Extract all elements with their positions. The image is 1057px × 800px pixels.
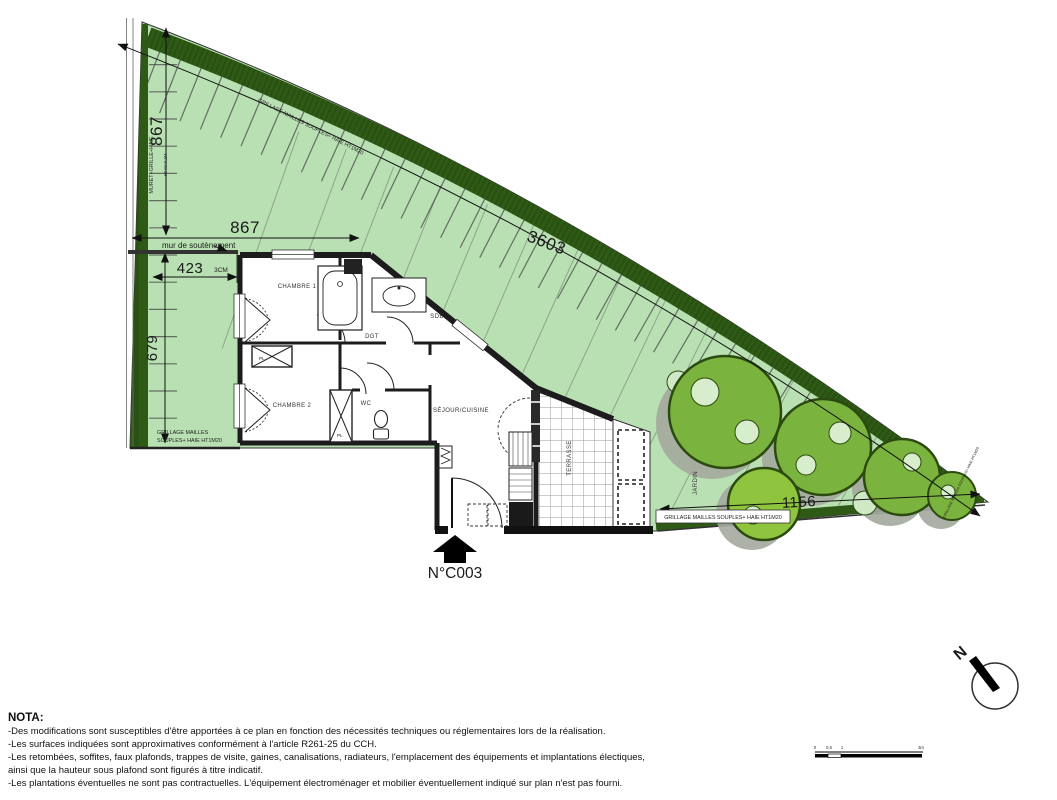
room-label-terrasse: TERRASSE: [567, 440, 573, 476]
scale-bar: 0 0.5 1 3m: [814, 745, 925, 758]
window-ch2: [234, 384, 245, 428]
radiator: [439, 446, 452, 468]
dim-867-top: 867: [230, 218, 260, 237]
room-label-chambre2: CHAMBRE 2: [273, 403, 312, 409]
nota-line: ainsi que la hauteur sous plafond sont f…: [8, 765, 698, 778]
entrance-gap: [448, 524, 504, 534]
north-compass: N: [951, 643, 1018, 709]
dim-679: 679: [144, 335, 161, 362]
tree-1: [669, 356, 781, 468]
nota-line: -Les retombées, soffites, faux plafonds,…: [8, 752, 698, 765]
room-label-jardin: JARDIN: [693, 471, 699, 495]
nota-title: NOTA:: [8, 712, 698, 724]
muret-label-1: MURET+GRILLE+HAIE: [149, 136, 155, 194]
hedge-left-texture: [134, 24, 139, 448]
retaining-wall-label: mur de soutènement: [162, 241, 236, 250]
toilet: [374, 411, 389, 440]
room-label-dgt: DGT: [365, 334, 379, 340]
scale-tick-3m: 3m: [918, 745, 924, 750]
water-heater: [344, 259, 362, 274]
fence-left-label-2: SOUPLES+ HAIE HT1M20: [157, 438, 222, 444]
room-label-sdb: SDB: [430, 314, 444, 320]
floor-plan-page: N 0 0.5 1 3m 867 867 423 3CM 679 3603 11…: [0, 0, 1057, 800]
entrance-arrow-icon: [433, 535, 477, 563]
muret-label-2: HT MAX 2M: [163, 153, 168, 176]
window-top: [272, 250, 314, 259]
dim-3cm: 3CM: [214, 267, 228, 274]
room-label-chambre1: CHAMBRE 1: [278, 284, 317, 290]
scale-tick-1: 1: [841, 745, 844, 750]
nota-line: -Des modifications sont susceptibles d'ê…: [8, 726, 698, 739]
room-label-wc: WC: [361, 401, 372, 407]
compass-needle-icon: [969, 656, 1000, 692]
nota-line: -Les plantations éventuelles ne sont pas…: [8, 778, 698, 791]
bathtub: [318, 266, 362, 330]
north-label: N: [951, 643, 971, 663]
scale-tick-0: 0: [814, 745, 817, 750]
floor-plan-canvas: N 0 0.5 1 3m 867 867 423 3CM 679 3603 11…: [0, 0, 1057, 800]
dim-1156: 1156: [781, 493, 816, 512]
room-label-pl1: PL: [259, 356, 265, 361]
dim-423: 423: [177, 260, 204, 277]
fence-left-label-1: GRILLAGE MAILLES: [157, 430, 209, 436]
window-ch1: [234, 294, 245, 338]
room-label-pl2: PL: [337, 433, 343, 438]
washbasin: [372, 278, 426, 312]
scale-tick-05: 0.5: [826, 745, 832, 750]
nota-block: NOTA: -Des modifications sont susceptibl…: [8, 712, 698, 791]
room-label-sejour: SÉJOUR/CUISINE: [433, 407, 489, 414]
fence-bottom-label: GRILLAGE MAILLES SOUPLES+ HAIE HT1M20: [664, 515, 782, 521]
nota-line: -Les surfaces indiquées sont approximati…: [8, 739, 698, 752]
closet-ch2-top: [252, 346, 292, 367]
unit-number-label: N°C003: [428, 565, 482, 582]
